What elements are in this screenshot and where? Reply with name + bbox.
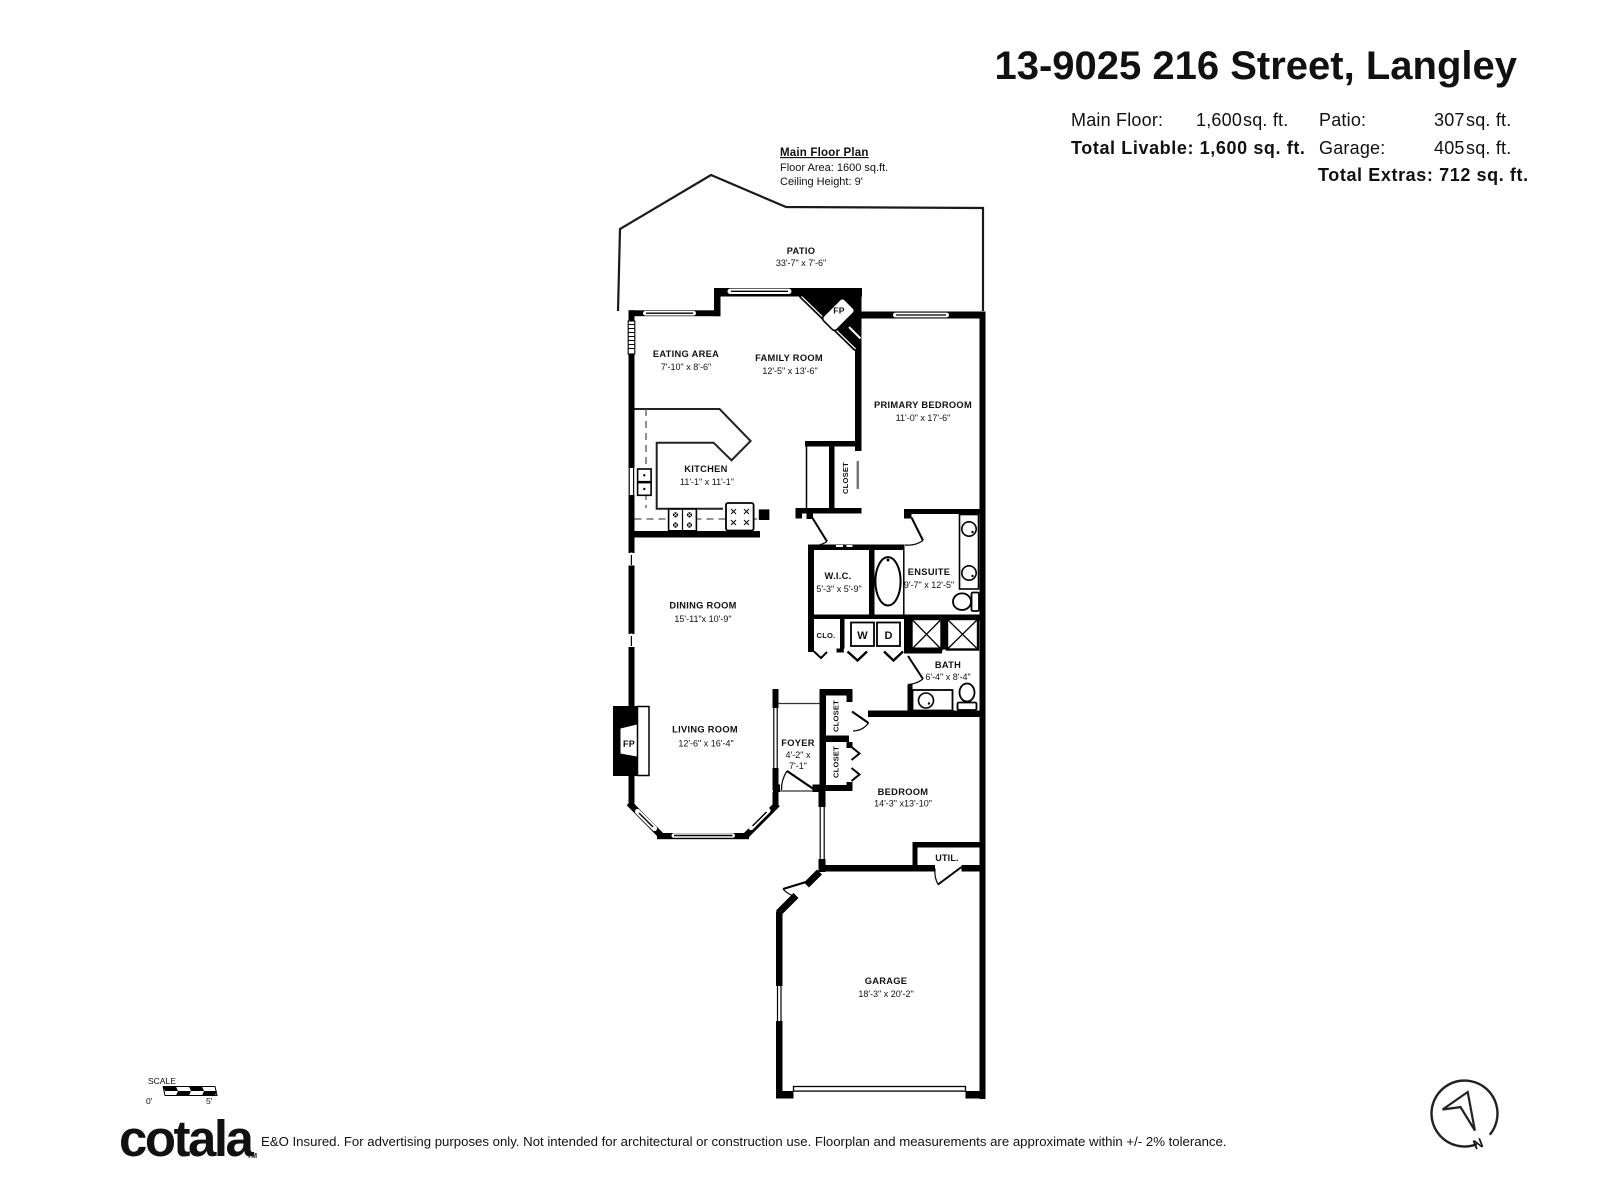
svg-text:5'-3" x 5'-9": 5'-3" x 5'-9" bbox=[816, 584, 861, 594]
svg-text:W.I.C.: W.I.C. bbox=[824, 571, 851, 581]
svg-text:6'-4" x 8'-4": 6'-4" x 8'-4" bbox=[925, 672, 970, 682]
svg-text:PRIMARY BEDROOM: PRIMARY BEDROOM bbox=[874, 400, 972, 410]
svg-text:Main Floor Plan: Main Floor Plan bbox=[780, 147, 869, 159]
svg-text:0': 0' bbox=[146, 1096, 153, 1106]
svg-text:11'-1" x 11'-1": 11'-1" x 11'-1" bbox=[680, 477, 734, 487]
svg-text:13-9025 216 Street, Langley: 13-9025 216 Street, Langley bbox=[994, 44, 1517, 88]
svg-text:CLOSET: CLOSET bbox=[832, 746, 841, 778]
svg-text:7'-10" x 8'-6": 7'-10" x 8'-6" bbox=[661, 362, 711, 372]
svg-text:405: 405 bbox=[1434, 138, 1465, 158]
svg-text:SCALE: SCALE bbox=[148, 1076, 176, 1086]
svg-text:Total Livable: 1,600 sq. ft.: Total Livable: 1,600 sq. ft. bbox=[1071, 138, 1306, 158]
svg-text:33'-7" x 7'-6": 33'-7" x 7'-6" bbox=[776, 258, 826, 268]
svg-text:Ceiling Height: 9': Ceiling Height: 9' bbox=[780, 176, 863, 188]
svg-text:FOYER: FOYER bbox=[781, 738, 815, 748]
svg-text:FP: FP bbox=[833, 306, 844, 316]
svg-text:GARAGE: GARAGE bbox=[865, 976, 908, 986]
svg-text:12'-6" x 16'-4": 12'-6" x 16'-4" bbox=[678, 739, 733, 749]
svg-text:4'-2" x: 4'-2" x bbox=[786, 750, 811, 760]
svg-text:Patio:: Patio: bbox=[1319, 110, 1366, 130]
svg-text:DINING ROOM: DINING ROOM bbox=[669, 601, 736, 611]
svg-text:D: D bbox=[885, 630, 893, 642]
svg-text:EATING AREA: EATING AREA bbox=[653, 349, 719, 359]
svg-text:307: 307 bbox=[1434, 110, 1465, 130]
svg-text:11'-0" x 17'-6": 11'-0" x 17'-6" bbox=[896, 413, 951, 423]
svg-text:sq. ft.: sq. ft. bbox=[1243, 110, 1288, 130]
svg-text:cotala: cotala bbox=[119, 1110, 255, 1167]
svg-text:Floor Area: 1600 sq.ft.: Floor Area: 1600 sq.ft. bbox=[780, 162, 888, 174]
svg-text:1,600: 1,600 bbox=[1196, 110, 1242, 130]
svg-text:CLO.: CLO. bbox=[817, 631, 836, 640]
svg-text:Garage:: Garage: bbox=[1319, 138, 1385, 158]
svg-text:18'-3" x 20'-2": 18'-3" x 20'-2" bbox=[858, 989, 913, 999]
svg-text:15'-11"x 10'-9": 15'-11"x 10'-9" bbox=[674, 614, 731, 624]
svg-text:FAMILY ROOM: FAMILY ROOM bbox=[755, 353, 823, 363]
svg-text:Main Floor:: Main Floor: bbox=[1071, 110, 1163, 130]
svg-text:ENSUITE: ENSUITE bbox=[908, 567, 950, 577]
svg-text:5': 5' bbox=[206, 1096, 213, 1106]
svg-text:UTIL.: UTIL. bbox=[935, 853, 959, 863]
svg-text:Total Extras: 712 sq. ft.: Total Extras: 712 sq. ft. bbox=[1318, 165, 1529, 185]
svg-text:12'-5" x 13'-6": 12'-5" x 13'-6" bbox=[762, 366, 817, 376]
svg-text:E&O Insured. For advertising p: E&O Insured. For advertising purposes on… bbox=[261, 1134, 1227, 1149]
svg-text:KITCHEN: KITCHEN bbox=[684, 464, 727, 474]
svg-text:LIVING ROOM: LIVING ROOM bbox=[672, 725, 738, 735]
svg-text:9'-7" x 12'-5": 9'-7" x 12'-5" bbox=[904, 580, 954, 590]
svg-text:PATIO: PATIO bbox=[787, 246, 816, 256]
svg-text:7'-1": 7'-1" bbox=[789, 761, 807, 771]
svg-text:CLOSET: CLOSET bbox=[832, 700, 841, 732]
svg-text:FP: FP bbox=[623, 739, 635, 749]
svg-text:W: W bbox=[857, 630, 868, 642]
svg-text:TM: TM bbox=[247, 1153, 257, 1160]
svg-text:BATH: BATH bbox=[935, 660, 961, 670]
svg-text:14'-3" x13'-10": 14'-3" x13'-10" bbox=[874, 799, 932, 809]
svg-text:BEDROOM: BEDROOM bbox=[878, 787, 929, 797]
svg-text:sq. ft.: sq. ft. bbox=[1466, 110, 1511, 130]
svg-text:CLOSET: CLOSET bbox=[841, 462, 850, 494]
svg-text:sq. ft.: sq. ft. bbox=[1466, 138, 1511, 158]
